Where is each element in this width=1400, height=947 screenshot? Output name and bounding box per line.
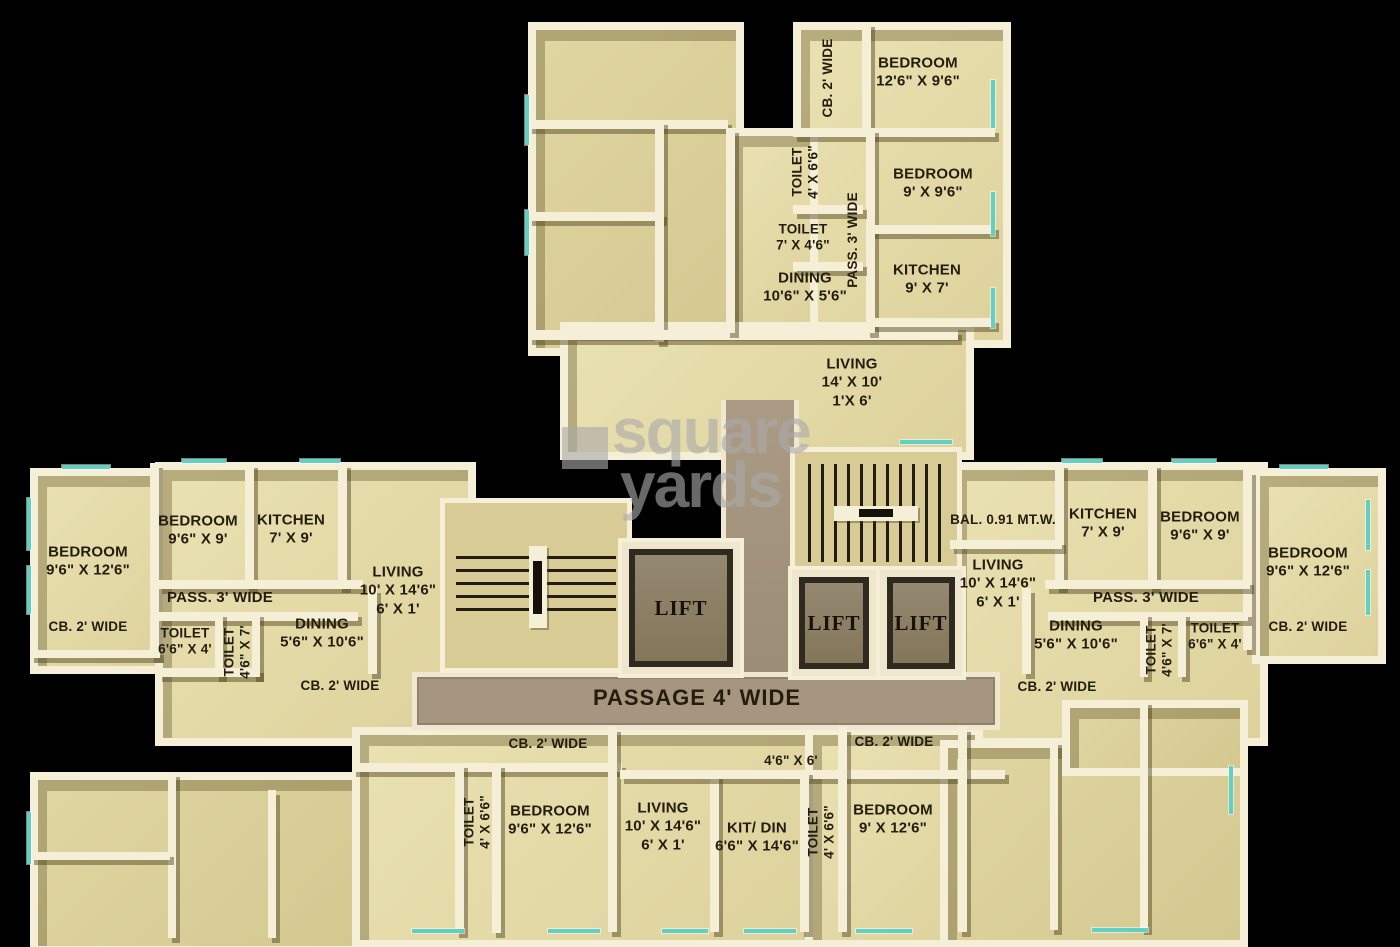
window-marker	[182, 459, 226, 463]
wall-segment	[838, 727, 847, 932]
window-marker	[412, 929, 464, 933]
wall-segment	[620, 770, 1005, 779]
room-label-toilet: TOILET 4' X 6'6"	[462, 795, 495, 849]
floor-slab	[1062, 700, 1248, 776]
window-marker	[900, 440, 952, 444]
window-marker	[1092, 928, 1148, 932]
wall-segment	[1148, 463, 1157, 588]
room-label-dining: DINING 5'6" X 10'6"	[1034, 618, 1118, 655]
room-label-passage: PASS. 3' WIDE	[1093, 589, 1199, 607]
room-label-toilet: TOILET 6'6" X 4'	[1188, 621, 1242, 654]
window-marker	[27, 566, 31, 614]
stair-well	[533, 561, 542, 614]
room-label-dining: DINING 5'6" X 10'6"	[280, 616, 364, 653]
window-marker	[300, 459, 340, 463]
window-marker	[525, 95, 529, 145]
lift-label: LIFT	[894, 611, 947, 636]
wall-segment	[1178, 612, 1186, 677]
lift-car: LIFT	[629, 549, 733, 667]
wall-segment	[1243, 470, 1252, 650]
window-marker	[548, 929, 600, 933]
window-marker	[27, 498, 31, 550]
wall-segment	[950, 540, 1062, 549]
wall-segment	[158, 580, 363, 589]
wall-segment	[1055, 463, 1064, 588]
wall-segment	[245, 463, 254, 588]
window-marker	[991, 288, 995, 328]
window-marker	[1229, 766, 1233, 814]
window-marker	[856, 929, 912, 933]
room-label-bedroom: BEDROOM 9'6" X 9'	[158, 513, 238, 550]
room-label-toilet: TOILET 4'6" X 7'	[1144, 623, 1177, 677]
wall-segment	[862, 22, 871, 137]
room-label-cb: CB. 2' WIDE	[49, 619, 128, 635]
room-label-kitchen-dining: KIT/ DIN 6'6" X 14'6"	[715, 820, 799, 857]
wall-segment	[958, 727, 967, 932]
room-label-toilet: TOILET 4' X 6'6"	[806, 805, 839, 859]
room-label-passage: PASS. 3' WIDE	[167, 589, 273, 607]
room-label-cb: CB. 2' WIDE	[509, 736, 588, 752]
window-marker	[991, 192, 995, 236]
window-marker	[1062, 459, 1102, 463]
room-label-living: LIVING 10' X 14'6" 6' X 1'	[960, 557, 1037, 612]
wall-segment	[1045, 580, 1250, 589]
floor-plan: PASSAGE 4' WIDE LIFT LIFT LIFT	[0, 0, 1400, 947]
wall-segment	[871, 225, 995, 234]
room-label-bedroom: BEDROOM 9' X 9'6"	[893, 166, 973, 203]
window-marker	[27, 812, 31, 864]
stair-landing	[834, 506, 918, 521]
room-label-toilet: TOILET 6'6" X 4'	[158, 626, 212, 659]
wall-segment	[608, 727, 617, 932]
room-label-balcony: BAL. 0.91 MT.W.	[950, 512, 1056, 528]
wall-segment	[1140, 700, 1148, 930]
staircase-left	[440, 498, 632, 673]
lift-box: LIFT	[876, 566, 966, 680]
room-label-bedroom: BEDROOM 9'6" X 9'	[1160, 509, 1240, 546]
room-label-bedroom: BEDROOM 9'6" X 12'6"	[508, 803, 592, 840]
wall-segment	[30, 852, 170, 860]
wall-segment	[268, 790, 276, 938]
window-marker	[1366, 570, 1370, 615]
passage-label: PASSAGE 4' WIDE	[593, 685, 801, 711]
wall-segment	[1050, 740, 1058, 930]
room-label-cb: CB. 2' WIDE	[820, 39, 836, 118]
wall-segment	[793, 128, 995, 137]
room-label-cb: CB. 2' WIDE	[855, 734, 934, 750]
wall-segment	[30, 650, 160, 658]
lift-label: LIFT	[654, 596, 707, 621]
wall-segment	[352, 763, 622, 772]
room-label-bedroom: BEDROOM 9'6" X 12'6"	[1266, 545, 1350, 582]
room-label-passage: PASS. 3' WIDE	[845, 192, 861, 288]
wall-segment	[528, 212, 663, 221]
wall-segment	[655, 120, 664, 342]
stair-landing	[529, 546, 547, 629]
lift-label: LIFT	[807, 611, 860, 636]
wall-segment	[338, 463, 347, 588]
window-marker	[991, 80, 995, 128]
room-label-toilet: TOILET 7' X 4'6"	[776, 222, 830, 255]
room-label-bedroom: BEDROOM 12'6" X 9'6"	[876, 55, 960, 92]
room-label-cb: CB. 2' WIDE	[1018, 679, 1097, 695]
room-label-dining: DINING 10'6" X 5'6"	[763, 270, 847, 307]
window-marker	[1280, 465, 1328, 469]
staircase-right	[790, 447, 962, 579]
room-label-living: LIVING 14' X 10' 1'X 6'	[822, 356, 883, 411]
room-label-kitchen: KITCHEN 9' X 7'	[893, 262, 961, 299]
room-label-toilet: TOILET 4'6" X 7'	[222, 625, 255, 679]
floor-slab	[528, 22, 744, 356]
wall-segment	[528, 330, 958, 340]
room-label-living: LIVING 10' X 14'6" 6' X 1'	[625, 800, 702, 855]
room-label-bedroom: BEDROOM 9'6" X 12'6"	[46, 544, 130, 581]
window-marker	[1366, 500, 1370, 550]
wall-segment	[528, 120, 728, 129]
window-marker	[1172, 459, 1216, 463]
stair-well	[859, 509, 893, 517]
window-marker	[525, 210, 529, 255]
room-label-kitchen: KITCHEN 7' X 9'	[257, 512, 325, 549]
room-label-bedroom: BEDROOM 9' X 12'6"	[853, 802, 933, 839]
wall-segment	[726, 128, 735, 333]
room-label-cb: CB. 2' WIDE	[301, 678, 380, 694]
room-label-cb: CB. 2' WIDE	[1269, 619, 1348, 635]
lift-box: LIFT	[618, 538, 744, 678]
room-label-kitchen: KITCHEN 7' X 9'	[1069, 506, 1137, 543]
room-label-living: LIVING 10' X 14'6" 6' X 1'	[360, 564, 437, 619]
lift-box: LIFT	[788, 566, 880, 680]
room-label-toilet: TOILET 4' X 6'6"	[790, 145, 823, 199]
room-label-dimension: 4'6" X 6'	[764, 753, 818, 769]
window-marker	[662, 929, 708, 933]
wall-segment	[871, 318, 995, 327]
window-marker	[744, 929, 796, 933]
lift-car: LIFT	[887, 577, 955, 669]
lift-car: LIFT	[799, 577, 869, 669]
window-marker	[62, 465, 110, 469]
